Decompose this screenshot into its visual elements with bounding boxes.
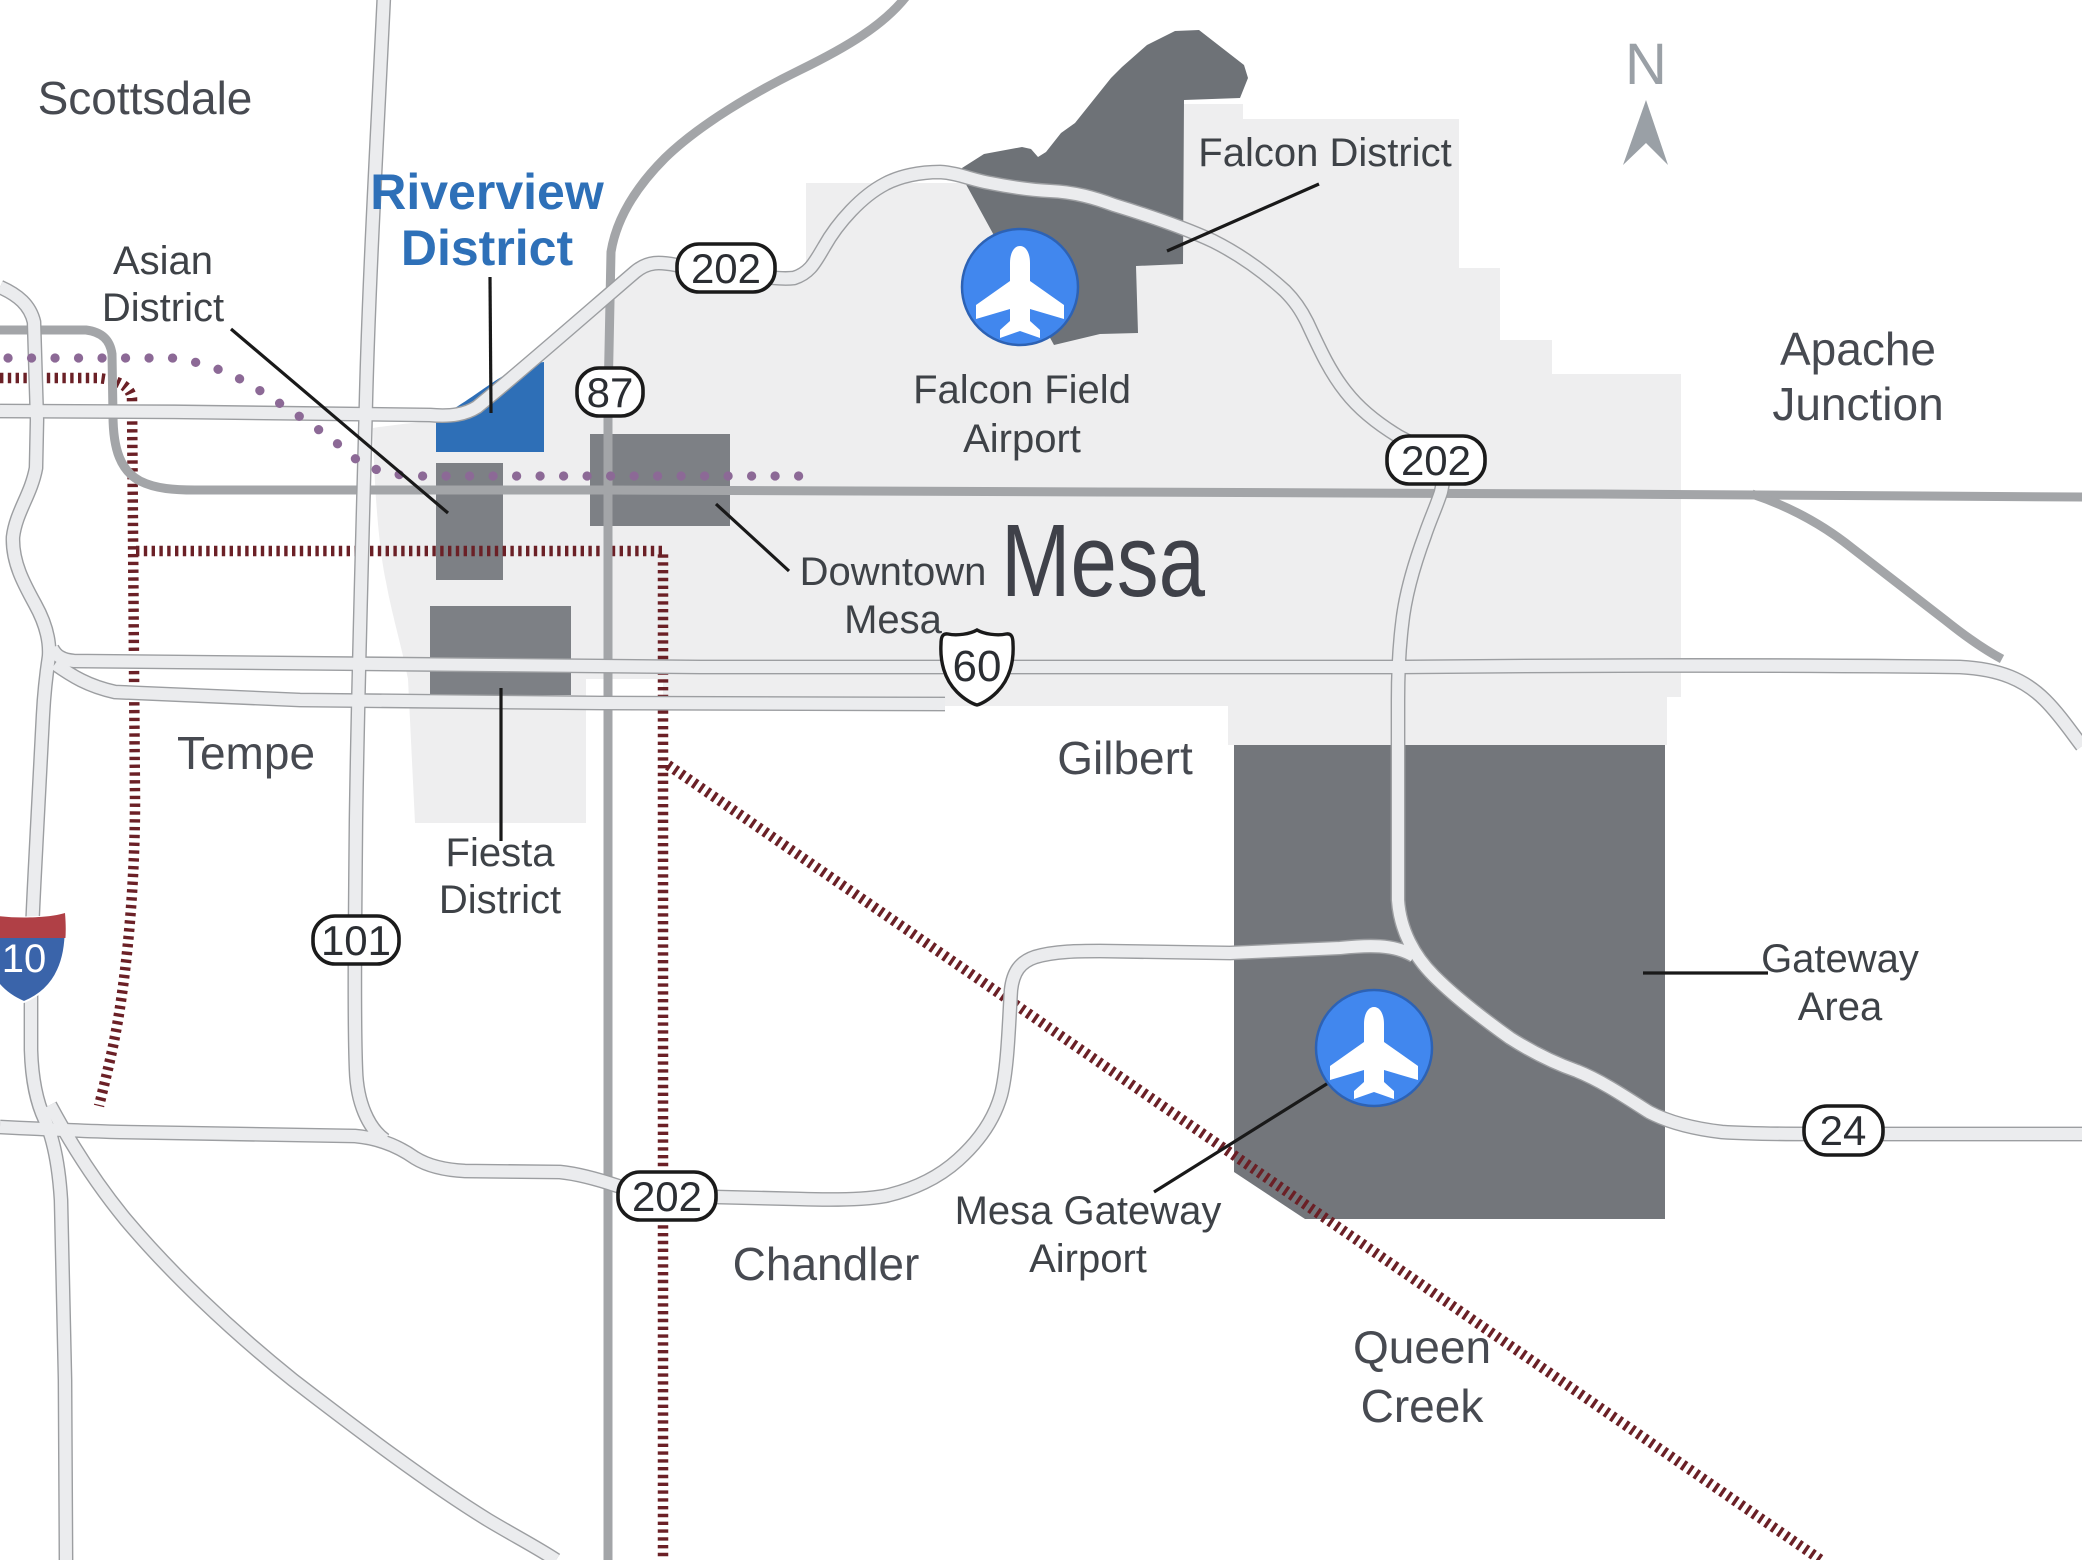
svg-text:Airport: Airport (1029, 1237, 1147, 1281)
svg-text:Queen: Queen (1353, 1321, 1491, 1373)
svg-text:Fiesta: Fiesta (446, 831, 556, 875)
svg-text:Chandler: Chandler (733, 1238, 920, 1290)
svg-text:202: 202 (1401, 437, 1471, 484)
svg-text:Junction: Junction (1772, 378, 1943, 430)
svg-text:101: 101 (321, 917, 391, 964)
svg-text:Scottsdale: Scottsdale (38, 72, 253, 124)
svg-text:Gateway: Gateway (1761, 937, 1919, 981)
svg-text:N: N (1625, 32, 1667, 97)
svg-text:Mesa Gateway: Mesa Gateway (955, 1189, 1222, 1233)
svg-text:Creek: Creek (1361, 1380, 1485, 1432)
svg-text:Downtown: Downtown (800, 550, 987, 594)
svg-text:Gilbert: Gilbert (1057, 732, 1193, 784)
svg-text:Airport: Airport (963, 417, 1081, 461)
svg-text:District: District (401, 220, 574, 276)
svg-text:District: District (102, 286, 224, 330)
svg-text:Mesa: Mesa (844, 598, 943, 642)
svg-text:Falcon District: Falcon District (1198, 131, 1451, 175)
svg-text:24: 24 (1820, 1107, 1867, 1154)
svg-text:Riverview: Riverview (370, 164, 604, 220)
svg-text:60: 60 (953, 642, 1002, 691)
svg-text:Asian: Asian (113, 239, 213, 283)
svg-text:202: 202 (691, 245, 761, 292)
svg-text:Apache: Apache (1780, 323, 1936, 375)
svg-text:87: 87 (587, 369, 634, 416)
svg-text:Area: Area (1798, 985, 1883, 1029)
svg-text:Mesa: Mesa (1001, 503, 1206, 618)
svg-text:10: 10 (2, 937, 47, 981)
svg-text:Tempe: Tempe (177, 727, 315, 779)
svg-text:District: District (439, 878, 561, 922)
svg-text:Falcon Field: Falcon Field (913, 368, 1131, 412)
svg-text:202: 202 (632, 1173, 702, 1220)
